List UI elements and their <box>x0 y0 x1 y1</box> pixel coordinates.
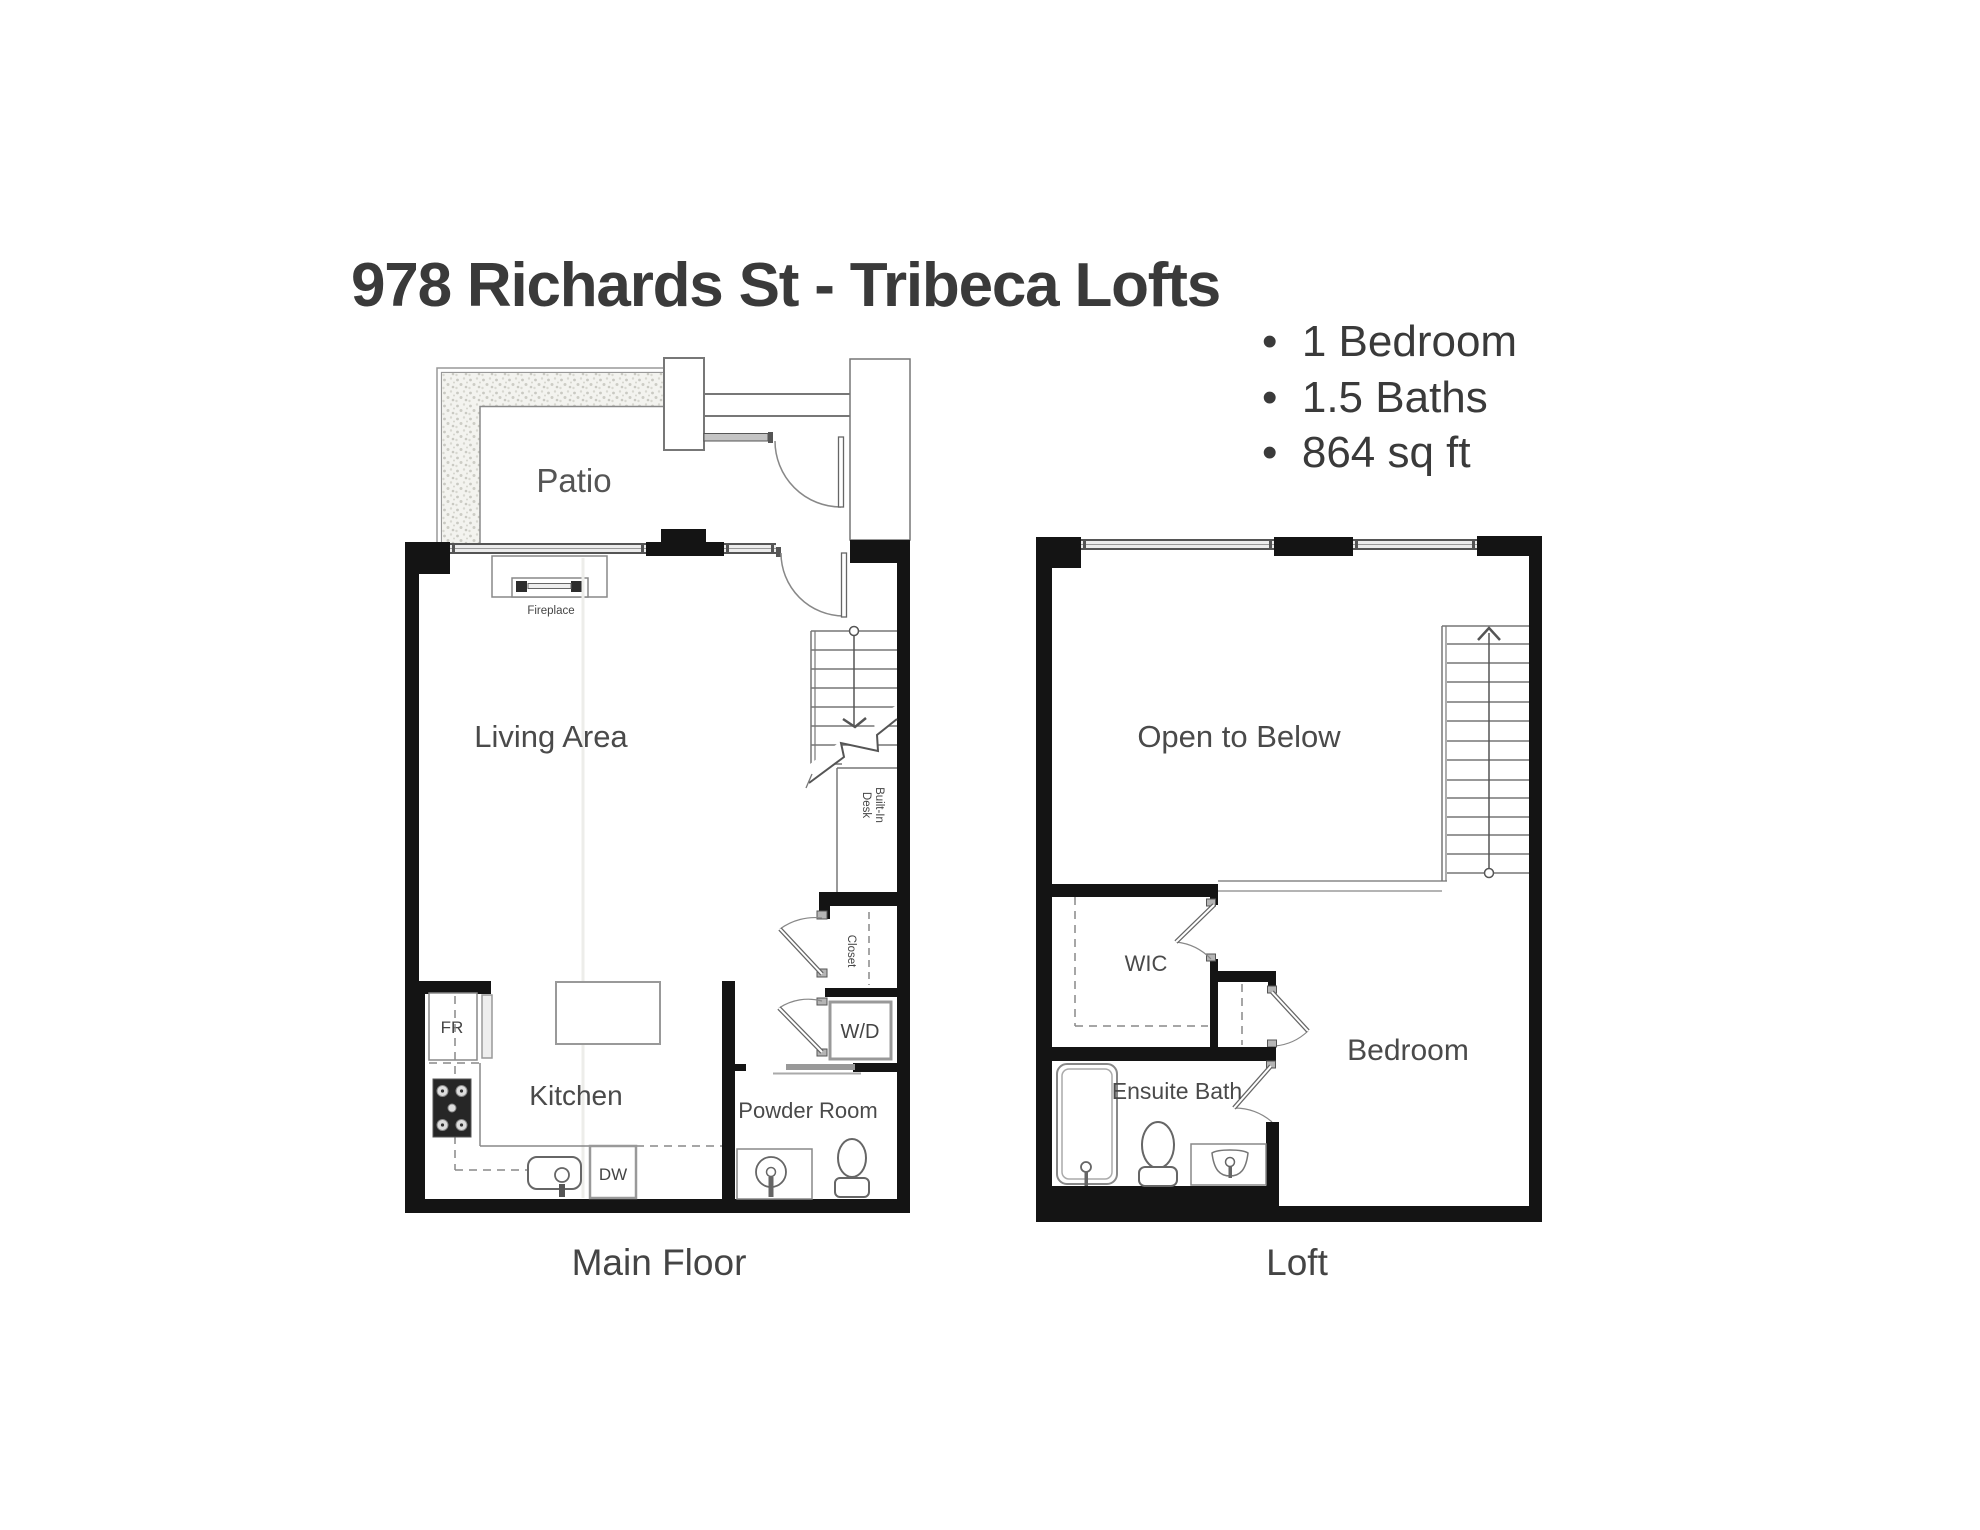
svg-text:Built-In: Built-In <box>873 787 885 823</box>
svg-text:Kitchen: Kitchen <box>529 1080 622 1111</box>
svg-text:• 1.5 Baths: • 1.5 Baths <box>1262 373 1488 422</box>
svg-text:Fireplace: Fireplace <box>527 605 574 617</box>
svg-text:Open to Below: Open to Below <box>1137 719 1341 754</box>
svg-text:• 864 sq ft: • 864 sq ft <box>1262 428 1471 477</box>
svg-text:Bedroom: Bedroom <box>1347 1034 1469 1067</box>
svg-text:• 1 Bedroom: • 1 Bedroom <box>1262 317 1517 366</box>
svg-text:FR: FR <box>441 1018 464 1037</box>
svg-text:Powder Room: Powder Room <box>738 1098 877 1123</box>
svg-text:Living Area: Living Area <box>474 719 628 754</box>
svg-text:Main Floor: Main Floor <box>572 1242 747 1283</box>
svg-text:978 Richards St - Tribeca Loft: 978 Richards St - Tribeca Lofts <box>351 251 1220 320</box>
svg-text:Desk: Desk <box>860 792 872 818</box>
svg-text:DW: DW <box>599 1165 627 1184</box>
svg-text:WIC: WIC <box>1125 951 1168 976</box>
svg-text:W/D: W/D <box>841 1021 880 1043</box>
svg-text:Closet: Closet <box>845 935 857 968</box>
svg-text:Patio: Patio <box>536 462 611 499</box>
svg-text:Ensuite Bath: Ensuite Bath <box>1112 1078 1242 1104</box>
svg-text:Loft: Loft <box>1266 1242 1328 1283</box>
